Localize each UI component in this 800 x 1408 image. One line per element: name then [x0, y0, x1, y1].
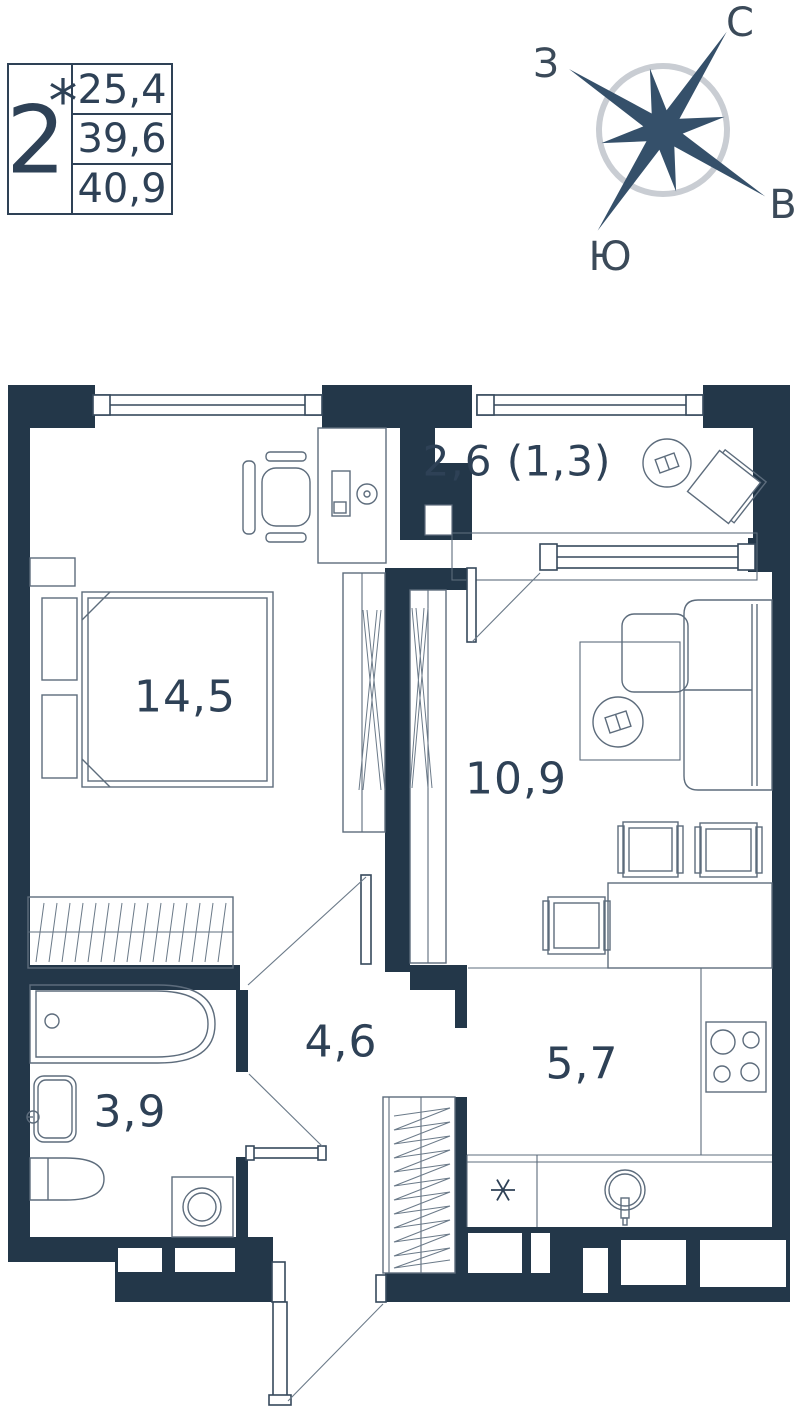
entrance-jamb-right — [376, 1275, 386, 1302]
bathroom-sink — [34, 1076, 76, 1142]
chair-frame — [700, 823, 757, 877]
living-wardrobe — [410, 590, 446, 963]
desk-stool-center — [364, 491, 370, 497]
book-spine — [616, 714, 621, 729]
dining-chair-1 — [618, 822, 683, 877]
balcony-window-cap-right — [686, 395, 703, 415]
chair-seat — [706, 829, 751, 871]
wall-bottom-left-a — [8, 1237, 115, 1262]
bedroom-door-swing — [248, 877, 366, 985]
bedroom-closet — [28, 897, 233, 968]
wall-bedroom-living — [385, 568, 410, 972]
burner-2 — [743, 1032, 759, 1048]
wall-top-right — [703, 385, 790, 428]
duct-opening-2 — [175, 1248, 235, 1272]
floor-plan-canvas: 2 * 25,4 39,6 40,9 С З В Ю — [0, 0, 800, 1408]
bedroom-wardrobe-body — [343, 573, 385, 832]
wall-bathroom-right-lower — [236, 1157, 248, 1237]
furniture-kitchen — [491, 1022, 766, 1225]
balcony-window-cap-left — [477, 395, 494, 415]
bathroom-door-cap-a — [246, 1146, 254, 1160]
washing-machine-drum-inner — [188, 1193, 216, 1221]
duct-opening-6 — [621, 1240, 686, 1285]
compass-west-label: З — [533, 41, 559, 87]
entrance-door — [269, 1262, 386, 1405]
bedroom-window — [93, 395, 322, 415]
room-lines — [467, 968, 772, 1227]
office-chair-seat — [262, 468, 310, 526]
bathroom-sink-basin — [38, 1080, 72, 1138]
entrance-jamb-left — [272, 1262, 285, 1302]
area-value-1: 25,4 — [77, 67, 166, 113]
bed-blanket-folds — [82, 592, 110, 787]
balcony-area-label: 2,6 (1,3) — [423, 437, 612, 486]
duct-opening-1 — [118, 1248, 162, 1272]
duct-opening-4 — [531, 1233, 550, 1273]
wall-kitchen-left-stub — [455, 965, 467, 1028]
hall-closet — [383, 1097, 455, 1273]
wall-left — [8, 385, 30, 1262]
partition-window-cap-left — [540, 544, 557, 570]
chair-seat — [629, 828, 672, 871]
desk-monitor — [332, 471, 350, 516]
room-count-asterisk: * — [49, 67, 78, 135]
bathtub-inner — [36, 991, 208, 1057]
balcony-door-leaf — [467, 568, 476, 642]
chair-frame — [623, 822, 678, 877]
entrance-door-leaf — [273, 1302, 287, 1403]
desk-monitor-base — [334, 502, 346, 513]
duct-opening-7 — [700, 1240, 786, 1287]
area-value-3: 40,9 — [77, 166, 166, 212]
office-chair-arm-top — [266, 452, 306, 461]
hallway-area-label: 4,6 — [305, 1017, 378, 1068]
entrance-door-swing — [288, 1304, 383, 1401]
wall-shaft-notch — [425, 505, 452, 535]
compass-north-label: С — [726, 0, 754, 46]
bedroom-desk — [318, 428, 386, 563]
balcony-door-swing — [472, 573, 540, 642]
balcony-window — [477, 395, 703, 415]
sofa-cushion-lines — [684, 604, 757, 786]
bedroom-door-leaf — [361, 875, 371, 964]
burner-1 — [711, 1030, 735, 1054]
wall-top-middle-pier — [322, 385, 472, 428]
area-value-2: 39,6 — [77, 116, 166, 162]
bedroom-wardrobe — [343, 573, 385, 832]
office-chair — [243, 452, 310, 542]
info-box: 2 * 25,4 39,6 40,9 — [6, 64, 172, 214]
bathtub-drain — [45, 1014, 59, 1028]
rug — [580, 642, 680, 760]
kitchen-area-label: 5,7 — [546, 1039, 619, 1090]
chair-frame — [548, 897, 605, 954]
nightstand-bottom — [42, 695, 77, 778]
coffee-table-book — [605, 711, 631, 733]
office-chair-back — [243, 461, 255, 534]
kitchen-faucet-icon — [621, 1198, 629, 1218]
kitchen-counter-front — [467, 1155, 772, 1162]
office-chair-arm-bottom — [266, 533, 306, 542]
desk-stool — [357, 484, 377, 504]
bathroom-door-cap-b — [318, 1146, 326, 1160]
bathroom-door-leaf — [248, 1148, 324, 1158]
kitchen-sink — [605, 1170, 645, 1210]
book-spine — [665, 456, 670, 469]
balcony-chair-seat — [688, 451, 761, 524]
balcony-door — [467, 568, 540, 642]
wall-right — [772, 428, 790, 1302]
balcony-partition — [452, 533, 757, 580]
bedroom-door — [248, 875, 371, 985]
balcony-table-book — [655, 453, 679, 473]
wall-bedroom-bottom — [30, 965, 240, 990]
bedroom-area-label: 14,5 — [134, 672, 236, 723]
sofa — [622, 600, 772, 790]
wall-closet-right — [455, 1097, 467, 1227]
sofa-body — [684, 600, 772, 790]
entrance-door-leaf-cap — [269, 1395, 291, 1405]
chair-seat — [554, 903, 599, 948]
bathroom-door — [246, 1074, 326, 1160]
dining-table — [608, 883, 772, 968]
floor-plan-page: 2 * 25,4 39,6 40,9 С З В Ю — [0, 0, 800, 1408]
duct-opening-3 — [468, 1233, 522, 1273]
washing-machine — [172, 1177, 233, 1237]
nightstand-top — [42, 598, 77, 680]
sofa-chaise — [622, 614, 688, 692]
bedroom-shelf — [30, 558, 75, 586]
bedroom-window-cap-right — [305, 395, 322, 415]
dining-chair-2 — [695, 823, 762, 877]
compass-south-label: Ю — [588, 234, 631, 280]
living-area-label: 10,9 — [465, 754, 567, 805]
toilet — [30, 1158, 104, 1200]
compass-east-label: В — [769, 182, 796, 228]
partition-window-cap-right — [738, 544, 755, 570]
burner-4 — [741, 1063, 759, 1081]
kitchen-faucet-tip — [623, 1218, 627, 1225]
furniture-balcony — [643, 439, 766, 526]
duct-opening-5 — [583, 1248, 608, 1293]
appliance-asterisk-icon — [491, 1180, 515, 1201]
wall-bathroom-right-upper — [236, 990, 248, 1072]
bathroom-area-label: 3,9 — [94, 1087, 167, 1138]
kitchen-sink-inner — [609, 1174, 641, 1206]
compass-rose: С З В Ю — [533, 0, 797, 280]
dining-chair-3 — [543, 897, 610, 954]
bedroom-window-cap-left — [93, 395, 110, 415]
bathroom-door-swing — [249, 1074, 322, 1146]
burner-3 — [714, 1066, 730, 1082]
